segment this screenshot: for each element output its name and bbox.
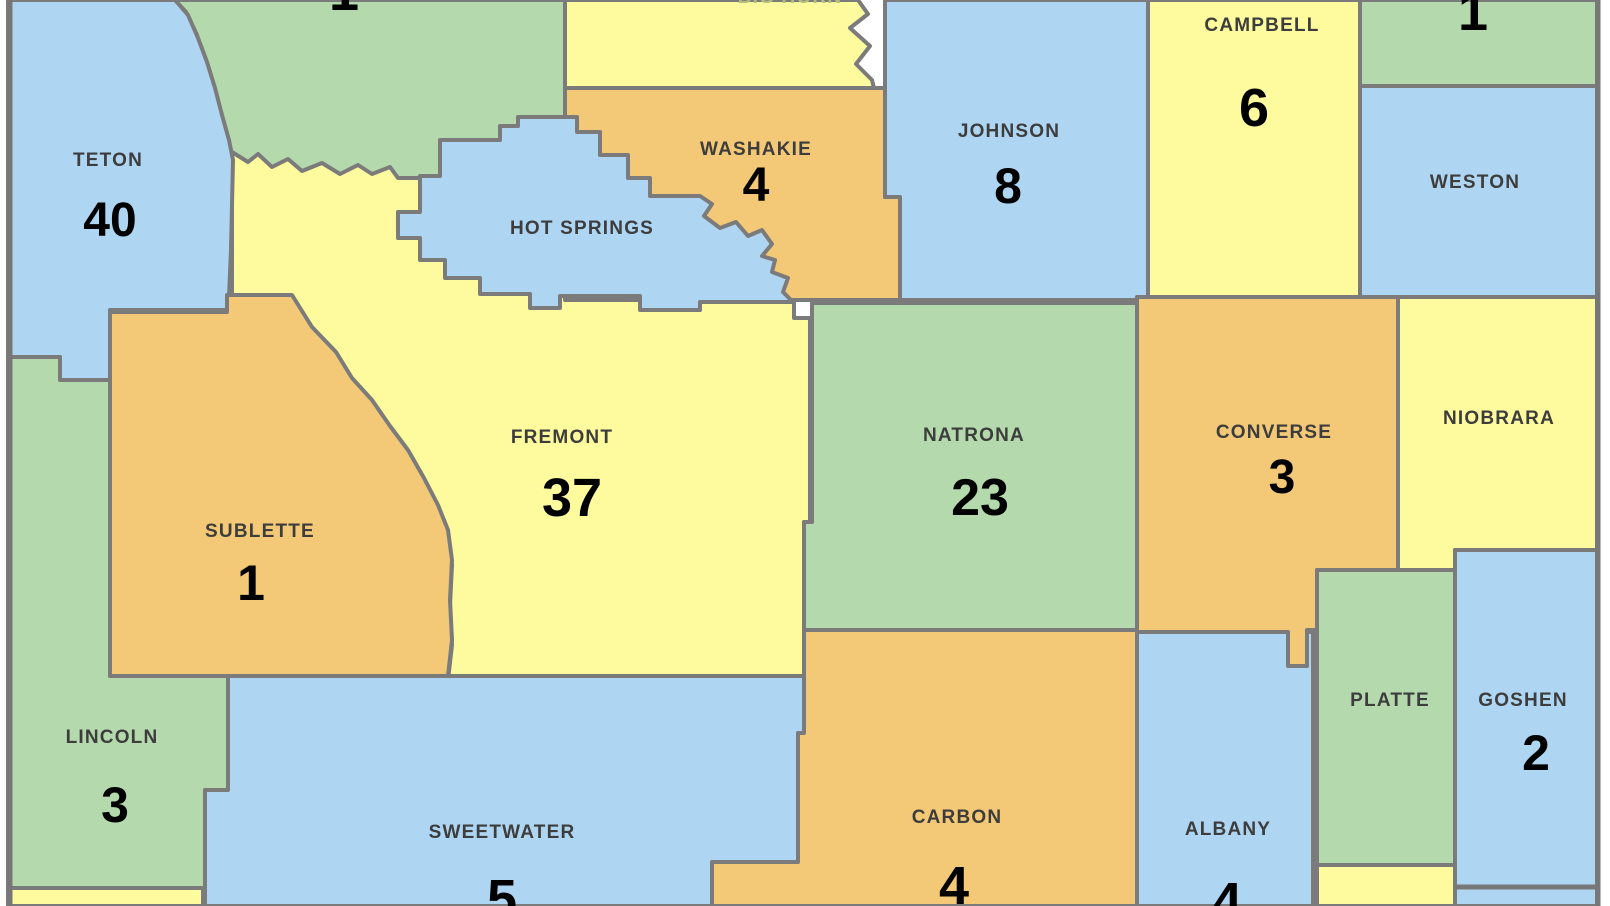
county-campbell: CAMPBELL6 (1148, 0, 1360, 297)
county-uinta-region (8, 888, 203, 906)
county-teton-count: 40 (83, 194, 136, 247)
county-converse-label: CONVERSE (1216, 422, 1332, 443)
county-map: 1BIG HORNFREMONT37TETON40WASHAKIE4HOT SP… (0, 0, 1610, 906)
county-niobrara: NIOBRARA (1398, 297, 1597, 570)
county-sweetwater-count: 5 (487, 869, 517, 906)
county-lincoln-count: 3 (101, 777, 129, 833)
county-bighorn: BIG HORN (565, 0, 874, 88)
county-natrona-region (804, 303, 1137, 630)
county-fremont-label: FREMONT (511, 427, 613, 448)
county-albany: ALBANY4 (1137, 632, 1313, 906)
county-washakie-count: 4 (743, 159, 770, 212)
county-laramie (1317, 865, 1455, 906)
county-albany-count: 4 (1212, 872, 1242, 906)
county-goshen-label: GOSHEN (1478, 690, 1568, 711)
county-platte: PLATTE (1317, 570, 1455, 865)
county-natrona: NATRONA23 (804, 303, 1137, 630)
county-albany-label: ALBANY (1185, 819, 1271, 840)
county-weston-label: WESTON (1430, 172, 1520, 193)
county-niobrara-label: NIOBRARA (1443, 408, 1555, 429)
county-carbon-label: CARBON (912, 807, 1003, 828)
county-sweetwater-label: SWEETWATER (429, 822, 576, 843)
county-campbell-region (1148, 0, 1360, 297)
county-campbell-label: CAMPBELL (1204, 15, 1319, 36)
county-platte-region (1317, 570, 1455, 865)
wyoming-county-map-svg: 1BIG HORNFREMONT37TETON40WASHAKIE4HOT SP… (0, 0, 1610, 906)
county-converse-count: 3 (1269, 451, 1296, 504)
county-lincoln-label: LINCOLN (66, 727, 159, 748)
county-park-count: 1 (329, 0, 359, 22)
county-weston: WESTON (1360, 86, 1597, 297)
county-albany-region (1137, 632, 1313, 906)
county-crook: 1 (1360, 0, 1597, 86)
county-bighorn-region (565, 0, 874, 88)
county-bighorn-label: BIG HORN (738, 0, 843, 8)
county-platte-label: PLATTE (1350, 690, 1430, 711)
county-campbell-count: 6 (1239, 78, 1269, 138)
county-niobrara-region (1398, 297, 1597, 570)
county-crook-count: 1 (1458, 0, 1488, 42)
county-teton-label: TETON (73, 150, 143, 171)
county-johnson-region (885, 0, 1148, 300)
county-sublette-label: SUBLETTE (205, 521, 315, 542)
county-carbon-count: 4 (939, 856, 969, 906)
county-goshen-count: 2 (1522, 725, 1550, 781)
county-johnson-label: JOHNSON (958, 121, 1060, 142)
county-johnson-count: 8 (994, 158, 1022, 214)
county-fremont-count: 37 (542, 468, 602, 528)
county-natrona-count: 23 (951, 469, 1009, 527)
county-johnson: JOHNSON8 (885, 0, 1148, 300)
county-uinta (8, 888, 203, 906)
county-sublette-count: 1 (237, 555, 265, 611)
county-washakie-label: WASHAKIE (700, 139, 812, 160)
county-laramie-region (1317, 865, 1455, 906)
county-hotsprings-label: HOT SPRINGS (510, 218, 654, 239)
county-goshen: GOSHEN2 (1455, 550, 1597, 906)
county-natrona-label: NATRONA (923, 425, 1025, 446)
